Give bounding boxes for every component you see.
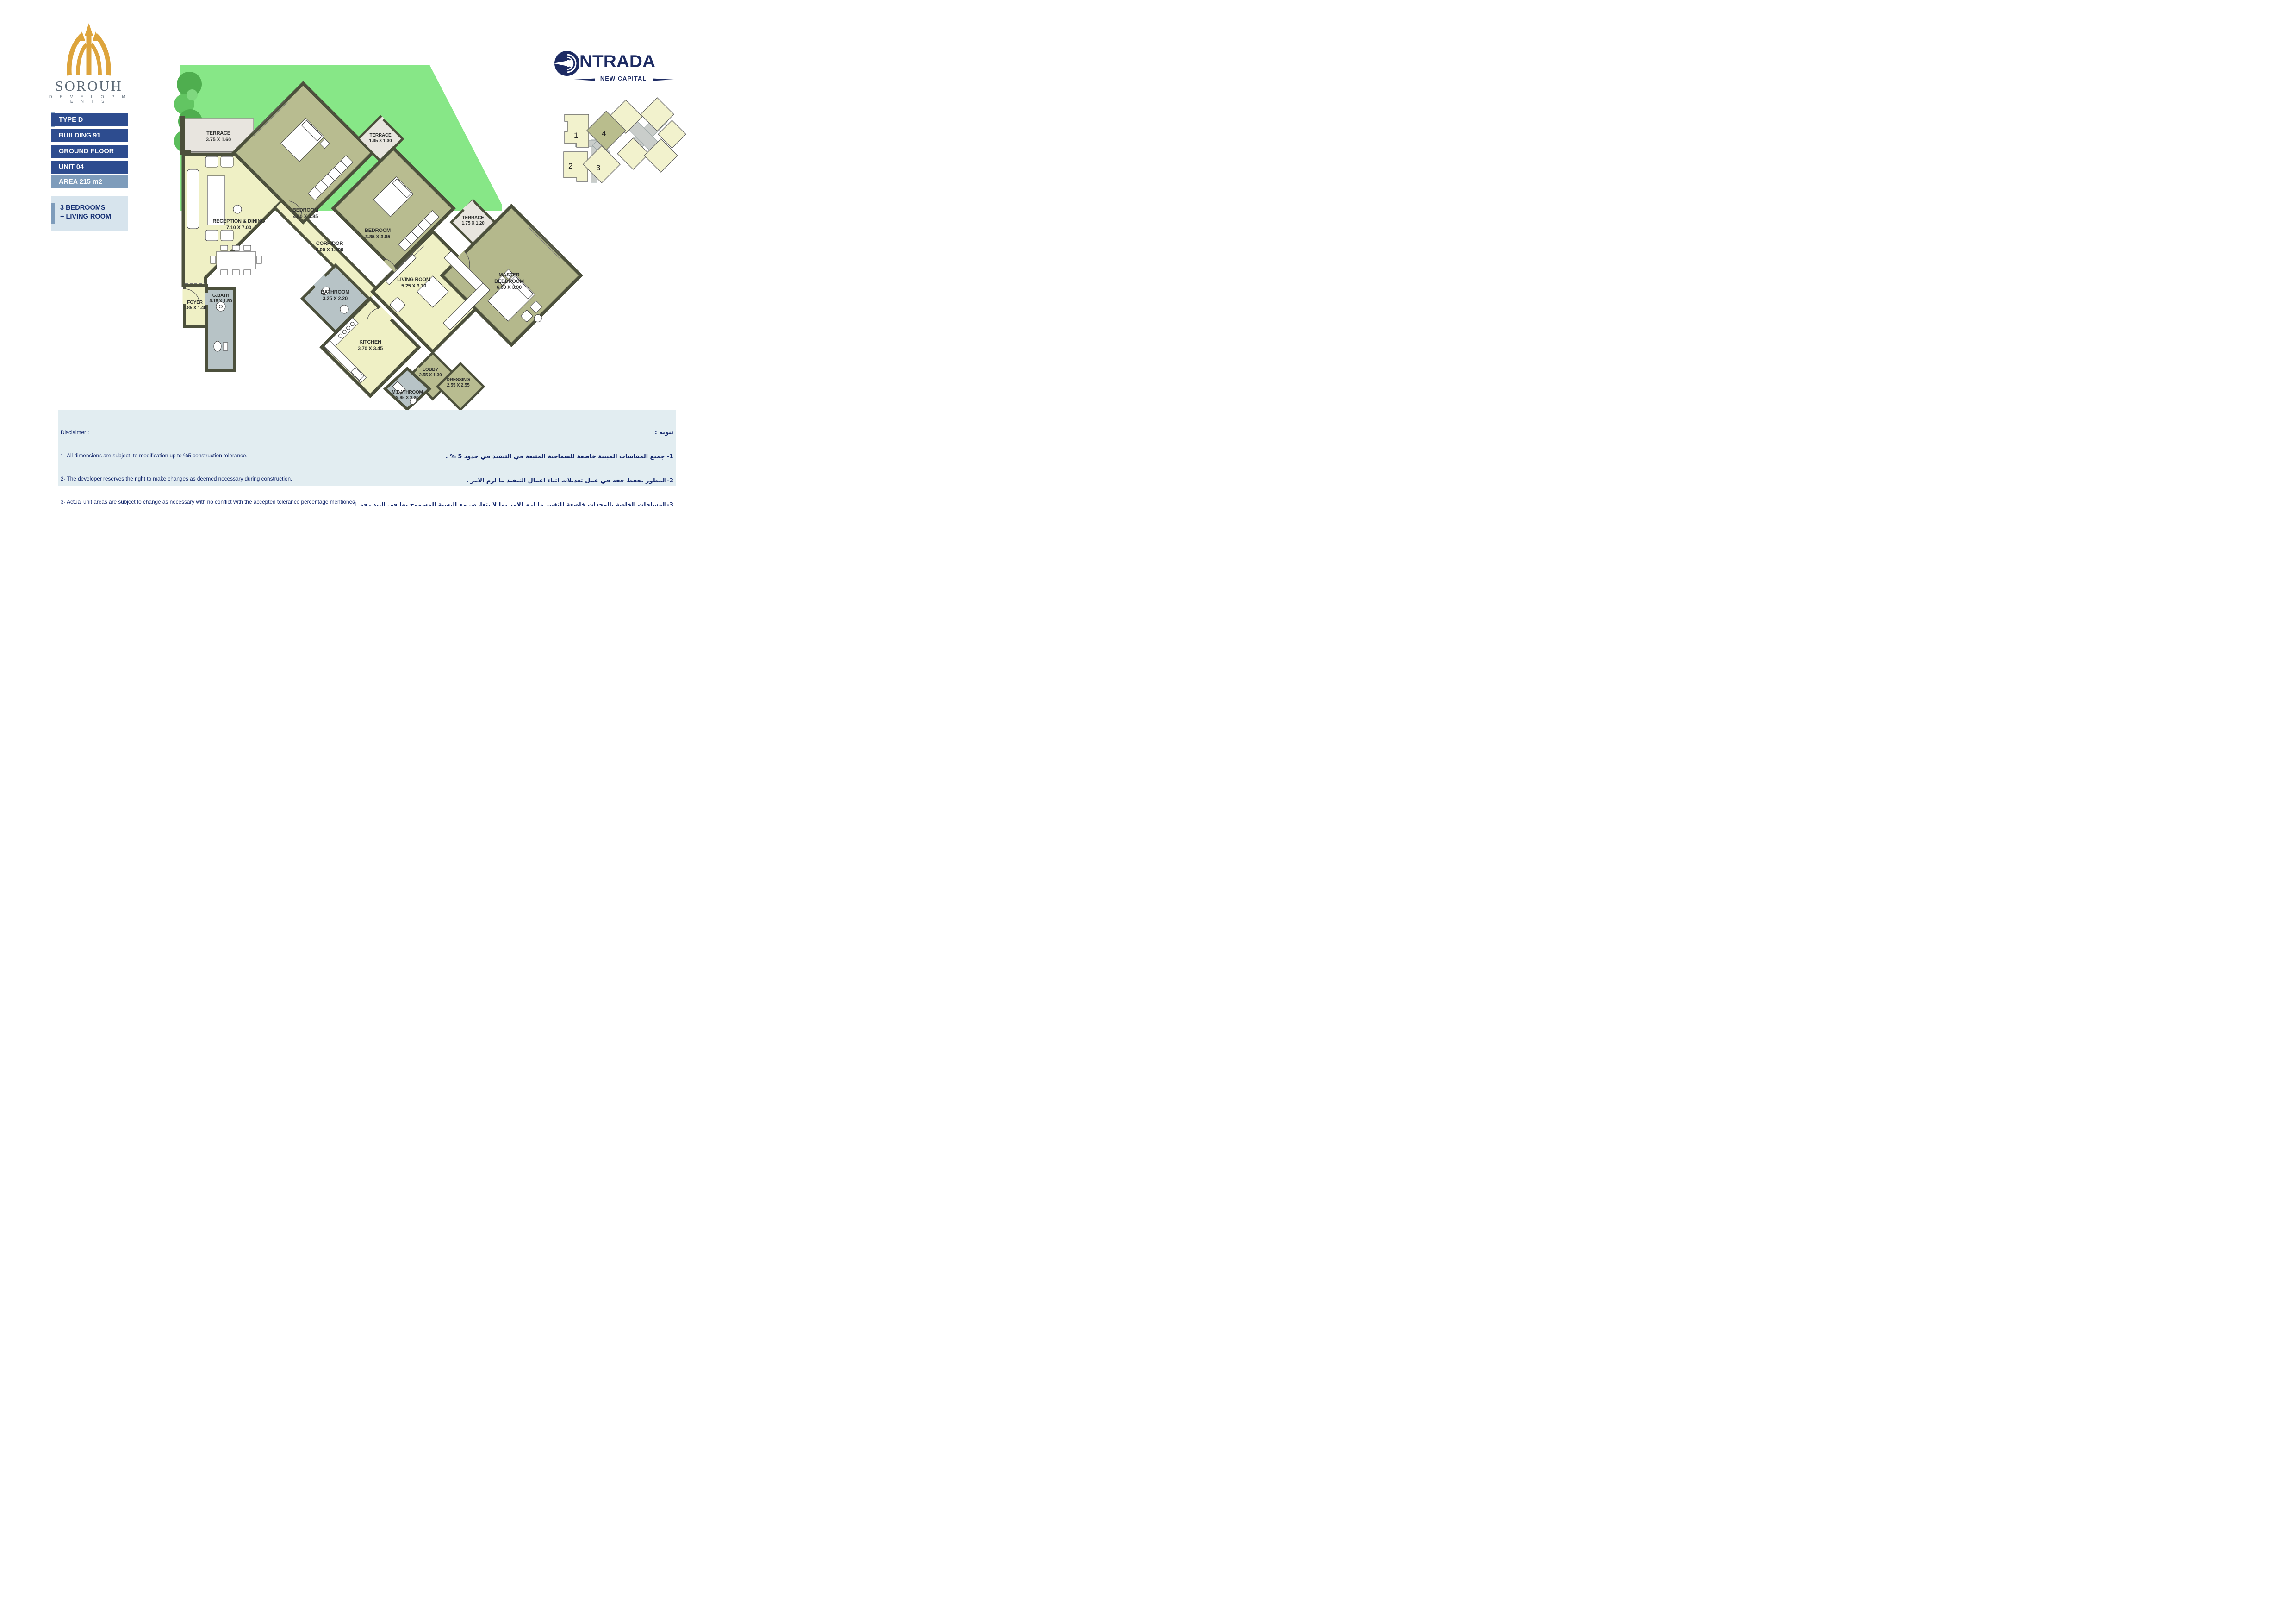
keyplan-num-2: 2	[568, 162, 572, 170]
label-lobby: LOBBY2.55 X 1.30	[396, 367, 465, 378]
keyplan-num-1: 1	[574, 131, 578, 140]
sidebar-bar-area: AREA 215 m2	[51, 175, 128, 188]
disclaimer-ar-line: 3-المساحات الخاصة بالوحدات خاضعة للتغيير…	[349, 501, 673, 506]
developer-name: SOROUH	[44, 78, 133, 94]
floorplan-brochure-page: 1 2 3 4 SOROUH D E V E L O P M E N T S N…	[0, 0, 716, 506]
disclaimer-en-line: 3- Actual unit areas are subject to chan…	[61, 498, 351, 506]
summary-line2: + LIVING ROOM	[60, 213, 111, 220]
key-plan: 1 2 3 4	[564, 98, 686, 183]
label-terrace-main: TERRACE3.75 X 1.60	[184, 131, 253, 143]
label-dressing: DRESSING2.55 X 2.55	[423, 377, 493, 388]
disclaimer-arabic: تنويه : 1- جميع المقاسات المبينة خاضعة ل…	[349, 412, 673, 506]
disclaimer-ar-line: 2-المطور يحفظ حقه في عمل تعديلات اثناء ا…	[349, 477, 673, 485]
dining-table	[217, 251, 255, 269]
disclaimer-en-title: Disclaimer :	[61, 429, 351, 437]
developer-subtitle: D E V E L O P M E N T S	[44, 94, 133, 104]
summary-line1: 3 BEDROOMS	[60, 204, 106, 212]
label-bedroom-2: BEDROOM3.85 X 3.85	[343, 228, 412, 240]
keyplan-num-3: 3	[596, 163, 600, 172]
label-master-bedroom: MASTER BEDDROOM6.00 X 3.90	[487, 272, 531, 291]
label-living: LIVING ROOM5.25 X 3.70	[379, 277, 448, 289]
label-terrace-small: TERRACE1.35 X 1.30	[346, 133, 415, 144]
project-name: NTRADA	[579, 52, 686, 71]
label-corridor: CORRIDOR6.00 X 1.300	[295, 241, 364, 253]
keyplan-building-3	[583, 146, 620, 183]
label-reception: RECEPTION & DINING7.10 X 7.00	[204, 219, 274, 231]
label-terrace-master: TERRACE1.75 X 1.20	[438, 215, 508, 226]
sidebar-bar-floor: GROUND FLOOR	[51, 145, 128, 158]
label-kitchen: KITCHEN3.70 X 3.45	[336, 339, 405, 352]
disclaimer-en-line: 1- All dimensions are subject to modific…	[61, 452, 351, 460]
sidebar-bar-unit: UNIT 04	[51, 161, 128, 174]
disclaimer-ar-line: 1- جميع المقاسات المبينة خاضعة للسماحية …	[349, 453, 673, 461]
disclaimer-en-line: 2- The developer reserves the right to m…	[61, 475, 351, 483]
sorouh-logo-icon	[69, 23, 109, 75]
disclaimer-ar-title: تنويه :	[349, 429, 673, 437]
sofa	[187, 169, 199, 229]
disclaimer-english: Disclaimer : 1- All dimensions are subje…	[61, 413, 351, 506]
sidebar-bar-type: TYPE D	[51, 113, 128, 126]
unit-summary-panel: 3 BEDROOMS + LIVING ROOM	[51, 196, 128, 231]
entrada-logo-icon	[554, 51, 579, 76]
keyplan-building-2	[564, 152, 588, 181]
label-m-bathroom: M.BATHROOM2.85 X 2.20	[373, 390, 442, 401]
project-tagline: NEW CAPITAL	[593, 75, 653, 82]
label-bathroom: BATHROOM3.25 X 2.20	[300, 289, 370, 302]
keyplan-num-4: 4	[602, 129, 606, 138]
label-bedroom-1: BEDROOM4.60 X 3.85	[271, 207, 340, 220]
sidebar-bar-building: BUILDING 91	[51, 129, 128, 142]
label-foyer: FOYER1.85 X 1.40	[160, 300, 230, 311]
summary-accent	[51, 203, 55, 224]
